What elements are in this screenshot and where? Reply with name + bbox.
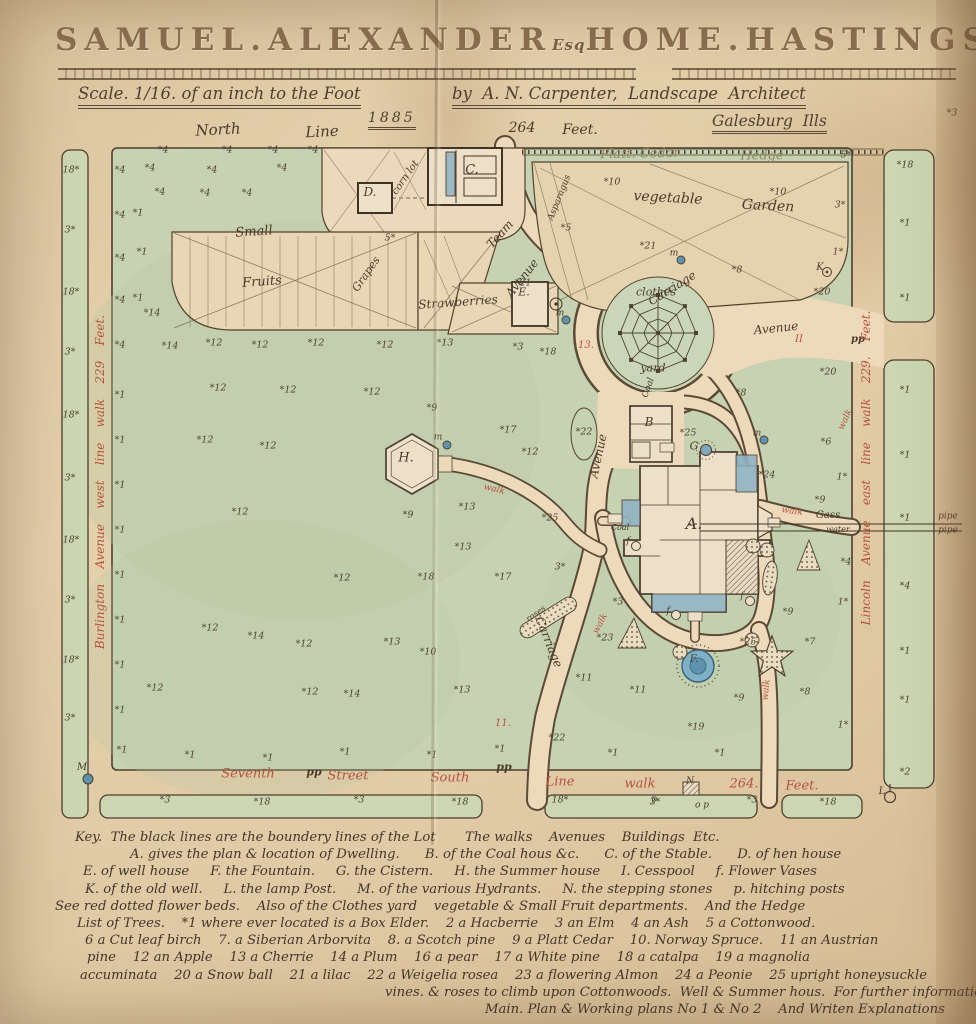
- key-line: List of Trees. *1 where ever located is …: [55, 915, 958, 932]
- tree-marker: *2: [900, 767, 911, 777]
- tree-marker: *18: [418, 572, 435, 582]
- tree-marker: *12: [147, 683, 164, 693]
- tree-marker: *1: [495, 744, 506, 754]
- tree-marker: *4: [155, 187, 166, 197]
- tree-marker: *12: [202, 623, 219, 633]
- east-street-label: Lincoln Avenue east line walk 229. Feet.: [860, 311, 872, 626]
- tree-marker: *1: [900, 218, 911, 228]
- tree-marker: *14: [144, 308, 161, 318]
- tree-marker: *9: [427, 403, 438, 413]
- hedge-label: Hedge: [740, 150, 783, 163]
- tree-marker: *25: [740, 637, 757, 647]
- label-stepping-stones-N: N: [686, 778, 694, 787]
- tree-marker: *12: [308, 338, 325, 348]
- tree-marker: *4: [222, 145, 233, 155]
- west-street-label: Burlington Avenue west line walk 229 Fee…: [94, 315, 106, 649]
- tree-marker: *10: [770, 187, 787, 197]
- tree-marker: 3*: [65, 595, 76, 605]
- tree-marker: *11: [630, 685, 647, 695]
- title-esq: Esq: [552, 36, 585, 54]
- tree-marker: *18: [254, 797, 271, 807]
- label-hydrant-M: M: [77, 763, 87, 773]
- tree-marker: *12: [232, 507, 249, 517]
- label-old-well-K: K: [816, 263, 823, 273]
- tree-marker: *4: [242, 188, 253, 198]
- tree-marker: 18*: [552, 795, 569, 805]
- title-word: HOME.: [585, 22, 745, 58]
- tree-marker: *4: [158, 145, 169, 155]
- key-line: A. gives the plan & location of Dwelling…: [55, 846, 958, 863]
- pipe-label: pipe: [938, 513, 958, 522]
- tree-marker: *13: [459, 502, 476, 512]
- tree-marker: *1: [115, 615, 126, 625]
- tree-marker: *3: [613, 597, 624, 607]
- tree-marker: *12: [280, 385, 297, 395]
- tree-marker: *5: [561, 223, 572, 233]
- hydrant-label: m: [670, 250, 679, 259]
- tree-marker: *1: [117, 745, 128, 755]
- tree-marker: 3*: [835, 200, 846, 210]
- tree-marker: *25: [680, 428, 697, 438]
- tree-marker: *10: [420, 647, 437, 657]
- label-hen-house-D: D.: [363, 186, 376, 198]
- tree-marker: *1: [427, 750, 438, 760]
- hydrant-label: m: [434, 434, 443, 443]
- key-line: E. of well house F. the Fountain. G. the…: [55, 863, 958, 880]
- label-coal-house-B: B: [645, 416, 654, 428]
- tree-marker: *1: [900, 450, 911, 460]
- key-line: pine 12 an Apple 13 a Cherrie 14 a Plum …: [55, 949, 958, 966]
- tree-marker: 3*: [65, 225, 76, 235]
- label-dwelling-A: A.: [686, 516, 703, 532]
- tree-marker: *24: [759, 470, 776, 480]
- tree-marker: *3: [160, 795, 171, 805]
- tree-marker: *1: [608, 748, 619, 758]
- tree-marker: *14: [162, 341, 179, 351]
- architect-city: Galesburg Ills: [712, 112, 827, 134]
- tree-marker: 3*: [555, 562, 566, 572]
- tree-marker: 18*: [63, 655, 80, 665]
- tree-marker: *8: [800, 687, 811, 697]
- key-line: accuminata 20 a Snow ball 21 a lilac 22 …: [55, 967, 958, 984]
- flower-vase-label: f: [666, 608, 669, 617]
- tree-marker: *12: [210, 383, 227, 393]
- scale-note: Scale. 1/16. of an inch to the Foot: [78, 84, 361, 109]
- tree-marker: *4: [115, 295, 126, 305]
- small-fruits-bed: [172, 232, 418, 330]
- tree-marker: *4: [277, 163, 288, 173]
- north-line-label: Line: [305, 124, 339, 141]
- tree-marker: 18*: [63, 410, 80, 420]
- tree-marker: *12: [260, 441, 277, 451]
- key-line: vines. & roses to climb upon Cottonwoods…: [55, 984, 958, 1001]
- label-summer-house-H: H.: [398, 452, 413, 465]
- tree-marker: *21: [640, 241, 657, 251]
- tree-marker: *1: [900, 513, 911, 523]
- tree-marker: *14: [248, 631, 265, 641]
- tree-marker: *8: [736, 388, 747, 398]
- hydrant-label: m: [753, 430, 762, 439]
- flower-vase-label: f: [626, 538, 629, 547]
- north-feet-label: Feet.: [562, 123, 598, 137]
- tree-marker: 3*: [65, 473, 76, 483]
- tree-marker: *6: [821, 437, 832, 447]
- small-fruits-label: Fruits: [242, 274, 282, 290]
- gas-pipe-label: Gass: [816, 511, 840, 521]
- tree-marker: *17: [500, 425, 517, 435]
- tree-marker: *4: [145, 163, 156, 173]
- tree-marker: *4: [900, 581, 911, 591]
- tree-marker: *18: [452, 797, 469, 807]
- title-word: SAMUEL.: [55, 22, 268, 58]
- tree-marker: 1*: [838, 597, 849, 607]
- tree-marker: *20: [820, 367, 837, 377]
- tree-marker: *4: [207, 165, 218, 175]
- tree-marker: *3: [947, 108, 958, 118]
- flower-vase-label: f: [740, 593, 743, 602]
- tree-marker: *12: [197, 435, 214, 445]
- tree-marker: *13: [437, 338, 454, 348]
- coal-label: Coal: [611, 524, 629, 532]
- key-line: K. of the old well. L. the lamp Post. M.…: [55, 881, 958, 898]
- tree-marker: *1: [185, 750, 196, 760]
- tree-marker: *13: [454, 685, 471, 695]
- tree-marker: *10: [604, 177, 621, 187]
- tree-marker: *4: [268, 145, 279, 155]
- tree-marker: *9: [734, 693, 745, 703]
- label-cistern-G: G: [690, 441, 699, 452]
- tree-marker: *1: [900, 695, 911, 705]
- tree-marker: *9: [403, 510, 414, 520]
- hydrant-M: [83, 774, 93, 784]
- tree-marker: *11: [576, 673, 593, 683]
- title-rule: [672, 68, 956, 80]
- tree-marker: *3: [513, 342, 524, 352]
- clothes-yard-label: clothes: [636, 287, 676, 298]
- tree-marker: *1: [115, 480, 126, 490]
- tree-marker: *1: [115, 570, 126, 580]
- tree-marker: *1: [715, 748, 726, 758]
- key-line: See red dotted flower beds. Also of the …: [55, 898, 958, 915]
- tree-marker: *22: [549, 733, 566, 743]
- tree-marker: *12: [206, 338, 223, 348]
- plan-sheet: SAMUEL. ALEXANDER Esq HOME. HASTINGS. NE…: [0, 0, 976, 1024]
- key-text: Key. The black lines are the boundery li…: [55, 829, 958, 1018]
- vegetable-garden-label: Garden: [741, 198, 794, 215]
- tree-marker: *1: [900, 385, 911, 395]
- north-feet-label: 264: [509, 121, 536, 135]
- tree-marker: *13: [384, 637, 401, 647]
- vegetable-garden-label: vegetable: [633, 189, 703, 207]
- tree-marker: *4: [115, 165, 126, 175]
- tree-marker: 5*: [841, 150, 852, 160]
- tree-marker: *8: [732, 265, 743, 275]
- tree-marker: 18*: [63, 165, 80, 175]
- station-mark: II: [795, 335, 803, 345]
- tree-marker: *4: [308, 145, 319, 155]
- tree-marker: *1: [263, 753, 274, 763]
- tree-marker: *14: [344, 689, 361, 699]
- tree-marker: 1*: [837, 472, 848, 482]
- tree-marker: 18*: [63, 287, 80, 297]
- title-rule: [58, 68, 636, 80]
- label-fountain-F: F.: [690, 655, 699, 665]
- tree-marker: *9: [783, 607, 794, 617]
- tree-marker: 3*: [65, 347, 76, 357]
- clothes-yard-label: yard: [640, 363, 665, 374]
- tree-marker: *1: [115, 660, 126, 670]
- tree-marker: *1: [340, 747, 351, 757]
- tree-marker: 3*: [65, 713, 76, 723]
- key-line: Main. Plan & Working plans No 1 & No 2 A…: [55, 1001, 958, 1018]
- tree-marker: *4: [115, 210, 126, 220]
- post-mark: o p: [695, 802, 709, 811]
- tree-marker: *3: [747, 795, 758, 805]
- pipe-label: pipe: [938, 527, 958, 536]
- south-street-label: 264.: [730, 778, 759, 791]
- tree-marker: *4: [115, 253, 126, 263]
- tree-marker: *21: [515, 278, 532, 288]
- tree-marker: *1: [900, 293, 911, 303]
- tree-marker: *1: [115, 525, 126, 535]
- tree-marker: *23: [597, 633, 614, 643]
- tree-marker: *12: [334, 573, 351, 583]
- key-line: Key. The black lines are the boundery li…: [55, 829, 958, 846]
- tree-marker: *9: [815, 495, 826, 505]
- plan-date: 1885: [368, 110, 416, 130]
- tree-marker: *12: [252, 340, 269, 350]
- label-lamp-post-L: L: [879, 787, 886, 797]
- tree-marker: *1: [115, 390, 126, 400]
- south-street-label: Feet.: [785, 780, 818, 793]
- hydrant-label: m: [556, 310, 565, 319]
- tree-marker: *1: [133, 208, 144, 218]
- tree-marker: *12: [377, 340, 394, 350]
- hitching-posts-mark: pp: [496, 762, 511, 773]
- tree-marker: *25: [542, 513, 559, 523]
- south-street-label: Seventh: [221, 768, 275, 781]
- title-word: HASTINGS.: [746, 22, 976, 58]
- tree-marker: *1: [900, 646, 911, 656]
- tree-marker: *19: [688, 722, 705, 732]
- station-mark: 11.: [495, 719, 511, 729]
- hedge-label: Platt. Cedar: [600, 147, 680, 161]
- tree-marker: *18: [897, 160, 914, 170]
- tree-marker: *12: [302, 687, 319, 697]
- tree-marker: *17: [495, 572, 512, 582]
- south-street-label: Line: [546, 776, 575, 789]
- station-mark: 13.: [578, 341, 594, 351]
- label-stable-C: C.: [465, 164, 479, 177]
- tree-marker: *18: [820, 797, 837, 807]
- tree-marker: *12: [364, 387, 381, 397]
- south-street-label: Street: [328, 770, 369, 783]
- tree-marker: 1*: [838, 720, 849, 730]
- tree-marker: *12: [522, 447, 539, 457]
- water-pipe-label: water: [826, 526, 849, 534]
- tree-marker: 3*: [650, 797, 661, 807]
- cistern-G: [701, 445, 712, 456]
- tree-marker: *1: [115, 435, 126, 445]
- tree-marker: *1: [133, 293, 144, 303]
- south-street-label: walk: [625, 778, 656, 791]
- tree-marker: *1: [137, 247, 148, 257]
- tree-marker: *13: [455, 542, 472, 552]
- hitching-posts-mark: pp: [306, 767, 321, 778]
- tree-marker: 5*: [385, 233, 396, 243]
- tree-marker: *7: [805, 637, 816, 647]
- tree-marker: *4: [200, 188, 211, 198]
- title-word: ALEXANDER: [268, 22, 552, 58]
- tree-marker: *22: [576, 427, 593, 437]
- tree-marker: *12: [296, 639, 313, 649]
- tree-marker: 18*: [63, 535, 80, 545]
- key-line: 6 a Cut leaf birch 7. a Siberian Arborvi…: [55, 932, 958, 949]
- architect-byline: by A. N. Carpenter, Landscape Architect: [452, 84, 806, 109]
- north-line-label: North: [195, 121, 241, 138]
- tree-marker: *3: [354, 795, 365, 805]
- tree-marker: *20: [814, 287, 831, 297]
- south-street-label: South: [431, 772, 470, 785]
- tree-marker: *4: [115, 340, 126, 350]
- tree-marker: 1*: [833, 247, 844, 257]
- plan-title: SAMUEL. ALEXANDER Esq HOME. HASTINGS. NE…: [55, 22, 954, 58]
- small-fruits-label: Small: [235, 224, 273, 240]
- tree-marker: *1: [115, 705, 126, 715]
- tree-marker: *4: [841, 557, 852, 567]
- tree-marker: *18: [540, 347, 557, 357]
